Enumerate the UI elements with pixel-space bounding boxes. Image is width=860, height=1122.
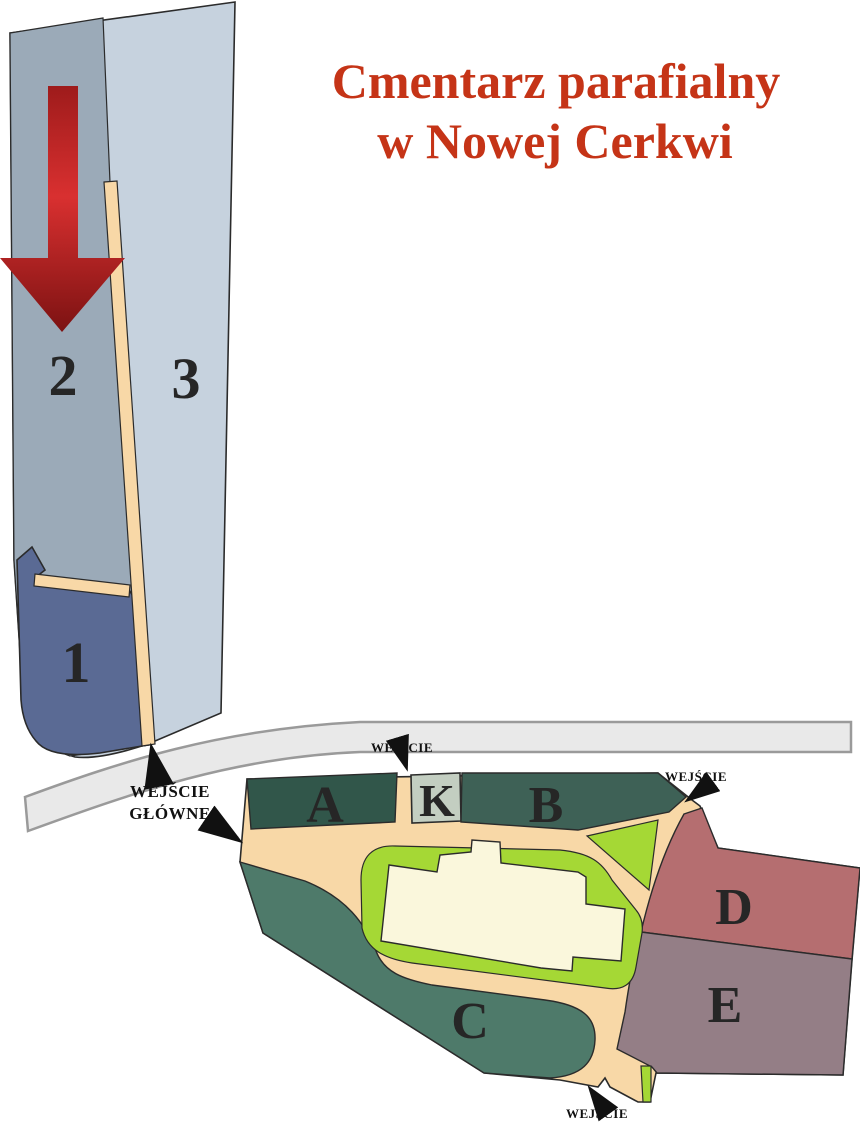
page-title-line1: Cmentarz parafialny	[332, 53, 781, 109]
section-2-label: 2	[49, 343, 78, 408]
top-entrance-arrow-icon	[403, 756, 406, 766]
bottom-entrance-label: WEJŚCIE	[566, 1106, 628, 1121]
page-title: Cmentarz parafialny w Nowej Cerkwi	[332, 53, 781, 169]
top-entrance-label: WEJŚCIE	[371, 740, 433, 755]
section-k-label: K	[419, 775, 455, 826]
right-entrance-label: WEJŚCIE	[665, 769, 727, 784]
page-title-line2: w Nowej Cerkwi	[377, 113, 733, 169]
upper-parcel: 1 2 3	[0, 2, 235, 757]
bottom-entrance-arrow-icon	[591, 1090, 601, 1104]
section-d-label: D	[715, 879, 753, 936]
section-3-label: 3	[172, 346, 201, 411]
lower-parcel: A K B C D E	[240, 773, 860, 1102]
section-c-label: C	[451, 993, 489, 1050]
main-entrance-arrow-right-icon	[212, 822, 237, 839]
cemetery-map: 1 2 3 A K B C D E WEJŚCIE GŁÓWNE WEJ	[0, 0, 860, 1122]
main-entrance-label-line1: WEJŚCIE	[130, 782, 210, 801]
section-1-label: 1	[62, 630, 91, 695]
main-entrance-label-line2: GŁÓWNE	[129, 804, 210, 823]
lawn-strip-bottom	[641, 1066, 651, 1102]
section-e-label: E	[708, 977, 743, 1034]
section-a-label: A	[306, 777, 344, 834]
right-entrance-arrow-icon	[689, 786, 707, 799]
section-b-label: B	[529, 777, 564, 834]
cemetery-map-page: 1 2 3 A K B C D E WEJŚCIE GŁÓWNE WEJ	[0, 0, 860, 1122]
